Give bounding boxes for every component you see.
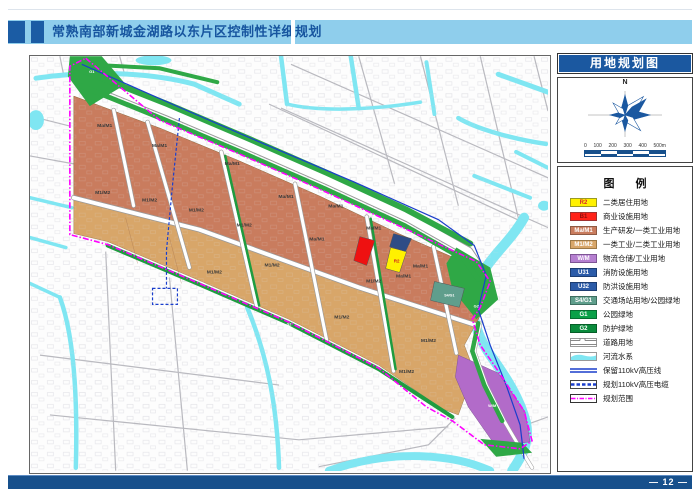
map-parcel-label: M1/M2 (366, 278, 381, 284)
legend-item: 规划110kV高压电缆 (570, 377, 692, 391)
map-parcel-label: G2 (287, 322, 292, 326)
header-gap (291, 20, 295, 44)
legend-swatch: B1 (570, 212, 597, 221)
legend-swatch: G1 (570, 310, 597, 319)
legend-item: 河流水系 (570, 349, 692, 363)
header-square-icon (31, 21, 44, 43)
legend-box: 图 例 R2二类居住用地B1商业设施用地Ma/M1生产研发/一类工业用地M1/M… (557, 166, 693, 472)
map-parcel-label: M1/M2 (334, 314, 349, 320)
legend-swatch-hv-line-icon (570, 366, 597, 375)
map-parcel-label: M1/M2 (421, 338, 436, 344)
map-parcel-label: S4/G1 (444, 293, 454, 297)
legend-item-label: 保留110kV高压线 (603, 365, 661, 376)
map-parcel-label: M1/M2 (237, 223, 252, 229)
landuse-map-canvas[interactable]: Ma/M1Ma/M1Ma/M1Ma/M1Ma/M1Ma/M1Ma/M1Ma/M1… (29, 55, 551, 474)
legend-swatch-boundary-icon (570, 394, 597, 403)
sidebar-map-title: 用地规划图 (559, 55, 691, 72)
header-square-icon (8, 21, 25, 43)
legend-item-label: 生产研发/一类工业用地 (603, 225, 680, 236)
legend-item: M1/M2一类工业/二类工业用地 (570, 237, 692, 251)
legend-swatch: U32 (570, 282, 597, 291)
map-parcel-label: Ma/M1 (278, 194, 293, 200)
legend-item-label: 公园绿地 (603, 309, 633, 320)
legend-item: B1商业设施用地 (570, 209, 692, 223)
map-parcel-label: Ma/M1 (225, 161, 240, 167)
landuse-map[interactable]: Ma/M1Ma/M1Ma/M1Ma/M1Ma/M1Ma/M1Ma/M1Ma/M1… (30, 56, 548, 471)
legend-swatch: S4/G1 (570, 296, 597, 305)
map-parcel-label: Ma/M1 (328, 204, 343, 210)
page-title: 常熟南部新城金湖路以东片区控制性详细规划 (52, 20, 322, 44)
scale-labels: 0100200300400500m (584, 143, 666, 149)
legend-item: G2防护绿地 (570, 321, 692, 335)
map-parcel-label: M1/M2 (399, 369, 414, 375)
legend-item-label: 防洪设施用地 (603, 281, 648, 292)
legend-swatch: Ma/M1 (570, 226, 597, 235)
scale-bar: 0100200300400500m (584, 143, 666, 157)
legend-item-label: 交通场站用地/公园绿地 (603, 295, 680, 306)
map-parcel-label: M1/M2 (95, 190, 110, 196)
legend-item: W/M物流仓储/工业用地 (570, 251, 692, 265)
legend-item-label: 一类工业/二类工业用地 (603, 239, 680, 250)
map-parcel-label: M1/M2 (142, 198, 157, 204)
legend-swatch: M1/M2 (570, 240, 597, 249)
legend-item: U32防洪设施用地 (570, 279, 692, 293)
map-parcel-label: M1/M2 (189, 208, 204, 214)
legend-item-label: 物流仓储/工业用地 (603, 253, 665, 264)
legend-item: 道路用地 (570, 335, 692, 349)
compass-scale-box: N 0100200300400500m (557, 77, 693, 163)
legend-rows: R2二类居住用地B1商业设施用地Ma/M1生产研发/一类工业用地M1/M2一类工… (558, 195, 692, 405)
legend-item: 保留110kV高压线 (570, 363, 692, 377)
legend-item-label: 防护绿地 (603, 323, 633, 334)
legend-item-label: 规划110kV高压电缆 (603, 379, 669, 390)
map-parcel-label: M1/M2 (207, 269, 222, 275)
legend-item: 规划范围 (570, 391, 692, 405)
legend-item-label: 消防设施用地 (603, 267, 648, 278)
map-parcel-label: M1/M2 (264, 262, 279, 268)
compass-rose-icon (558, 85, 692, 143)
map-parcel-label: G1 (89, 69, 95, 74)
legend-swatch: U31 (570, 268, 597, 277)
legend-swatch-road-icon (570, 338, 597, 347)
sidebar-map-title-box: 用地规划图 (557, 53, 693, 74)
page-number: — 12 — (649, 476, 688, 489)
scale-bar-graphic (584, 150, 666, 157)
legend-item: U31消防设施用地 (570, 265, 692, 279)
map-parcel-label: G2 (474, 303, 480, 308)
top-divider (8, 9, 692, 10)
legend-item-label: 规划范围 (603, 393, 633, 404)
planning-sheet: 常熟南部新城金湖路以东片区控制性详细规划 (0, 0, 700, 494)
legend-item: R2二类居住用地 (570, 195, 692, 209)
legend-item-label: 河流水系 (603, 351, 633, 362)
legend-item-label: 道路用地 (603, 337, 633, 348)
legend-swatch: G2 (570, 324, 597, 333)
map-parcel-label: R2 (394, 259, 400, 264)
legend-item: Ma/M1生产研发/一类工业用地 (570, 223, 692, 237)
legend-swatch: R2 (570, 198, 597, 207)
legend-item-label: 商业设施用地 (603, 211, 648, 222)
legend-item: S4/G1交通场站用地/公园绿地 (570, 293, 692, 307)
legend-swatch-water-icon (570, 352, 597, 361)
map-parcel-label: Ma/M1 (97, 123, 112, 129)
map-parcel-label: Ma/M1 (152, 143, 167, 149)
map-parcel-label: Ma/M1 (366, 226, 381, 232)
map-parcel-label: Ma/M1 (413, 263, 428, 269)
legend-swatch: W/M (570, 254, 597, 263)
map-parcel-label: Ma/M1 (396, 273, 411, 279)
header-bar: 常熟南部新城金湖路以东片区控制性详细规划 (8, 20, 692, 44)
footer-bar: — 12 — (8, 475, 692, 489)
map-parcel-label: W/M (488, 403, 497, 408)
legend-item: G1公园绿地 (570, 307, 692, 321)
legend-item-label: 二类居住用地 (603, 197, 648, 208)
legend-swatch-hv-cable-icon (570, 380, 597, 389)
legend-title: 图 例 (567, 175, 692, 191)
map-parcel-label: Ma/M1 (309, 237, 324, 243)
